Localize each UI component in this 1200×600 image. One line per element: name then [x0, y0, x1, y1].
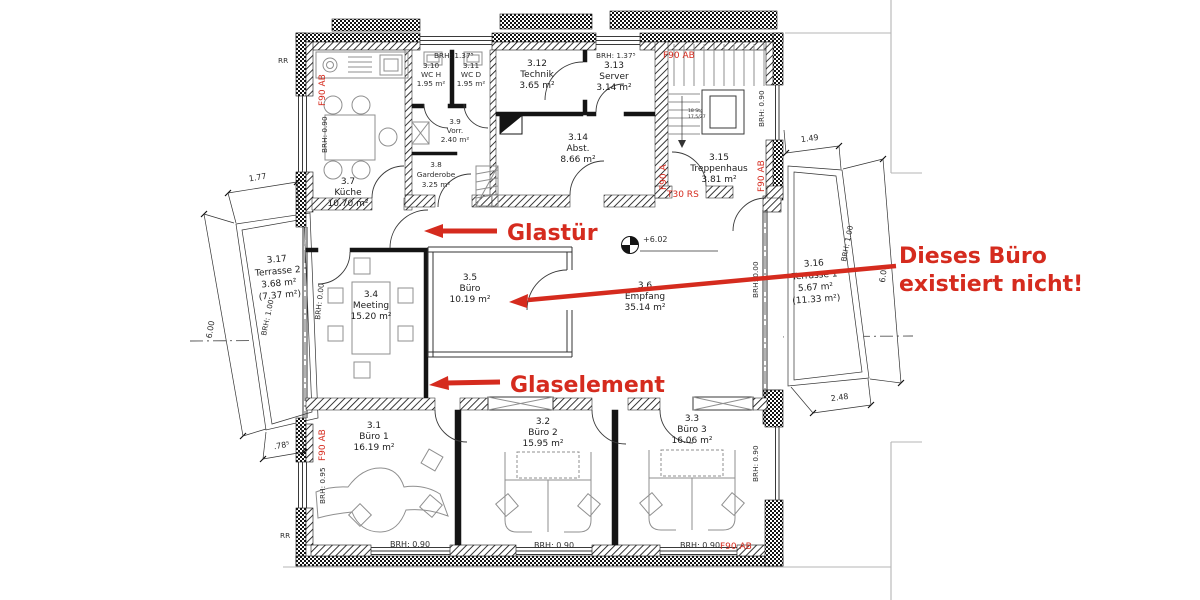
svg-text:3.12: 3.12	[527, 59, 547, 69]
svg-text:3.4: 3.4	[364, 290, 379, 300]
floorplan-drawing: 18 Stg 17,5/27	[0, 0, 1200, 600]
svg-text:10.70 m²: 10.70 m²	[327, 199, 368, 209]
brh-095-buero1: BRH: 0.95	[318, 467, 327, 504]
svg-text:Büro 3: Büro 3	[677, 425, 706, 435]
brh-090-b3: BRH: 0.90	[680, 541, 720, 550]
svg-text:Meeting: Meeting	[353, 301, 389, 311]
svg-text:Garderobe: Garderobe	[417, 170, 456, 179]
not-exists-label-1: Dieses Büro	[899, 244, 1047, 269]
f90a-stair: F90 A	[659, 164, 669, 190]
svg-text:Abst.: Abst.	[567, 144, 590, 154]
brh-090-buero3r: BRH: 0.90	[751, 445, 760, 482]
svg-text:Büro 2: Büro 2	[528, 428, 557, 438]
svg-text:3.15: 3.15	[709, 153, 729, 163]
f90ab-left-bottom: F90 AB	[318, 429, 328, 461]
svg-text:Server: Server	[599, 72, 629, 82]
rr-bottom: RR	[280, 531, 290, 540]
svg-text:Treppenhaus: Treppenhaus	[689, 164, 748, 174]
svg-text:3.1: 3.1	[367, 421, 381, 431]
svg-text:16.06 m²: 16.06 m²	[671, 436, 712, 446]
svg-text:15.20 m²: 15.20 m²	[350, 312, 391, 322]
svg-text:3.5: 3.5	[463, 273, 477, 283]
stair-note-line1: 18 Stg	[688, 108, 703, 114]
svg-text:Küche: Küche	[334, 188, 362, 198]
f90ab-top-right: F90 AB	[663, 51, 695, 61]
svg-text:Technik: Technik	[519, 70, 554, 80]
dim-1-49: 1.49	[800, 133, 819, 144]
stair-note-line2: 17,5/27	[688, 114, 706, 120]
glastuer-label: Glastür	[507, 221, 598, 246]
floorplan-screenshot: 18 Stg 17,5/27	[0, 0, 1200, 600]
f90ab-stair-right: F90 AB	[757, 160, 767, 192]
svg-text:Büro 1: Büro 1	[359, 432, 388, 442]
t30rs-label: T30 RS	[666, 190, 699, 200]
brh-090-b1: BRH: 0.90	[390, 540, 430, 549]
svg-text:8.66 m²: 8.66 m²	[560, 155, 596, 165]
svg-text:3.81 m²: 3.81 m²	[701, 175, 737, 185]
elevation-label: +6.02	[643, 235, 668, 244]
f90ab-left-top: F90 AB	[318, 74, 328, 106]
svg-text:3.14 m²: 3.14 m²	[596, 83, 632, 93]
svg-text:Empfang: Empfang	[625, 292, 665, 302]
svg-text:35.14 m²: 35.14 m²	[624, 303, 665, 313]
svg-text:10.19 m²: 10.19 m²	[449, 295, 490, 305]
dim-6-00-left: 6.00	[205, 320, 217, 339]
svg-text:3.25 m²: 3.25 m²	[422, 180, 451, 189]
svg-text:16.19 m²: 16.19 m²	[353, 443, 394, 453]
f90ab-bottom-right: F90 AB	[720, 542, 752, 552]
brh-090-stair: BRH: 0.90	[757, 90, 766, 127]
svg-text:3.3: 3.3	[685, 414, 699, 424]
svg-text:3.16: 3.16	[804, 258, 825, 269]
not-exists-label-2: existiert nicht!	[899, 272, 1083, 297]
svg-text:WC D: WC D	[461, 70, 482, 79]
glaselement-label: Glaselement	[510, 373, 665, 398]
dim-2-48: 2.48	[830, 392, 849, 403]
svg-text:3.13: 3.13	[604, 61, 624, 71]
svg-text:1.95 m²: 1.95 m²	[417, 79, 446, 88]
svg-text:1.95 m²: 1.95 m²	[457, 79, 486, 88]
svg-text:3.10: 3.10	[423, 61, 440, 70]
svg-text:3.9: 3.9	[449, 117, 461, 126]
svg-text:3.17: 3.17	[266, 254, 287, 266]
svg-text:15.95 m²: 15.95 m²	[522, 439, 563, 449]
glaselement-arrow-line	[446, 382, 500, 383]
svg-text:3.8: 3.8	[430, 160, 442, 169]
brh-137-b: BRH: 1.37⁵	[596, 51, 636, 60]
svg-text:3.11: 3.11	[463, 61, 479, 70]
brh-090-b2: BRH: 0.90	[534, 541, 574, 550]
svg-text:2.40 m²: 2.40 m²	[441, 135, 470, 144]
brh-090-kueche: BRH: 0.90	[320, 116, 329, 153]
svg-text:Büro: Büro	[460, 284, 481, 294]
dim-078: .78⁵	[273, 440, 290, 451]
svg-text:WC H: WC H	[421, 70, 441, 79]
shaft-icon	[500, 116, 522, 134]
svg-text:3.65 m²: 3.65 m²	[519, 81, 555, 91]
dim-1-77: 1.77	[248, 172, 267, 184]
svg-text:3.7: 3.7	[341, 177, 355, 187]
svg-text:3.2: 3.2	[536, 417, 550, 427]
svg-text:Vorr.: Vorr.	[447, 126, 463, 135]
rr-top: RR	[278, 56, 288, 65]
brh-137-a: BRH: 1.37⁵	[434, 51, 474, 60]
svg-text:3.14: 3.14	[568, 133, 588, 143]
